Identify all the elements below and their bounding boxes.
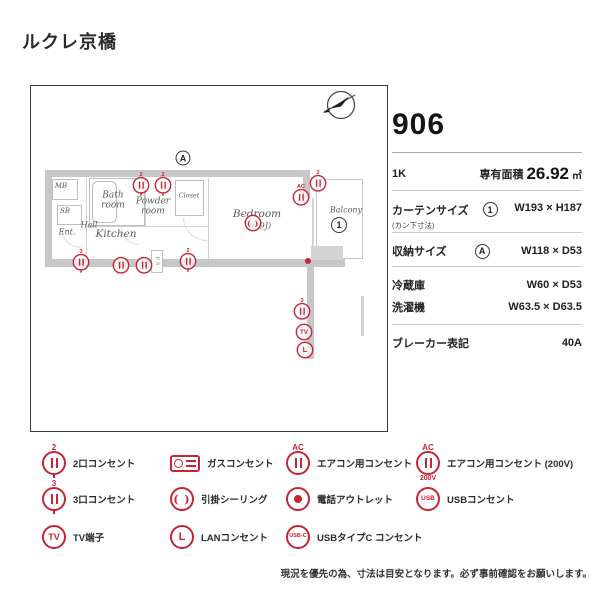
room-label-balcony: Balcony [330,205,362,214]
plan-outlet3-icon: 3 [294,303,311,323]
plan-ac-outlet-icon: AC [293,189,310,209]
breaker-label: ブレーカー表記 [392,335,469,351]
rail-stub [361,296,364,336]
usbc-outlet-icon: USB-C [286,525,310,549]
storage-label: 収納サイズ [392,243,447,259]
legend-item-outlet3: 3 3口コンセント [42,486,135,512]
storage-marker-ref: A [475,244,490,259]
plan-lan-icon: L [297,342,314,359]
room-label-kitchen: Kitchen [95,228,136,240]
fridge-row: 冷蔵庫 W60 × D53 [392,274,582,296]
plan-gas-outlet-icon [136,257,153,277]
divider [392,232,582,233]
gas-outlet-icon [170,455,200,472]
divider [392,266,582,267]
washer-label: 洗濯機 [392,299,425,315]
fridge-value: W60 × D53 [527,279,582,291]
curtain-label: カーテンサイズ [392,202,469,218]
plan-outlet2-icon: 2 [155,177,172,197]
info-panel: 906 1K 専有面積 26.92 ㎡ カーテンサイズ (カン下寸法) 1 W1… [392,108,582,368]
area-unit: ㎡ [572,167,582,182]
partition-line [208,178,209,259]
plan-outlet2-icon [113,257,130,277]
curtain-sublabel: (カン下寸法) [392,220,469,231]
partition-line [86,178,87,259]
room-label-mb: MB [55,182,67,190]
page: ルクレ京橋 [0,0,600,600]
breaker-value: 40A [562,337,582,349]
plan-tv-icon: TV [296,324,313,341]
divider [392,324,582,325]
compass-icon [321,86,359,124]
wall [45,170,52,267]
plan-outlet2-icon: 2 [133,177,150,197]
washer-value: W63.5 × D63.5 [508,301,582,313]
curtain-marker-ref: 1 [483,202,498,217]
legend-item-ac200: AC200V エアコン用コンセント (200V) [416,450,573,476]
room-label-ps: PS [154,257,160,268]
washer-row: 洗濯機 W63.5 × D63.5 [392,296,582,318]
building-title: ルクレ京橋 [22,28,117,54]
disclaimer: 現況を優先の為、寸法は目安となります。必ず事前確認をお願いします。 [281,566,592,580]
layout-type: 1K [392,168,406,180]
area-label: 専有面積 [479,166,523,182]
room-label-closet: Closet [179,192,200,199]
wall [45,170,307,177]
ceiling-light-icon: ( ) [170,487,194,511]
door-arc [183,217,207,241]
plan-outlet3-icon: 3 [73,254,90,274]
legend-item-ceiling: ( ) 引掛シーリング [170,486,268,512]
legend-item-outlet2: 2 2口コンセント [42,450,135,476]
layout-area-row: 1K 専有面積 26.92 ㎡ [392,160,582,188]
curtain-marker: 1 [331,217,347,233]
legend-item-ac: AC エアコン用コンセント [286,450,412,476]
storage-value: W118 × D53 [521,245,582,257]
curtain-value: W193 × H187 [514,202,582,214]
room-label-powder: Powder room [131,197,175,218]
lan-icon: L [170,525,194,549]
legend-item-gas: ガスコンセント [170,450,274,476]
area-value: 26.92 [526,164,569,184]
divider [392,152,582,153]
phone-outlet-icon [286,487,310,511]
plan-outlet2-icon: 2 [180,253,197,273]
unit-number: 906 [392,108,445,142]
divider [392,190,582,191]
usb-outlet-icon: USB [416,487,440,511]
outlet2-icon: 2 [42,451,66,475]
room-label-bath: Bath room [91,191,135,212]
legend-item-lan: L LANコンセント [170,524,268,550]
breaker-row: ブレーカー表記 40A [392,332,582,354]
legend-item-usb: USB USBコンセント [416,486,515,512]
storage-row: 収納サイズ A W118 × D53 [392,238,582,264]
legend-item-usbc: USB-C USBタイプC コンセント [286,524,423,550]
plan-phone-outlet-icon [305,258,311,264]
plan-outlet2-icon: 2 [310,175,327,195]
room-label-ent: Ent. [59,227,76,236]
plan-ceiling-light-icon: ( ) [245,215,262,232]
ac-outlet-icon: AC [286,451,310,475]
room-label-sb: SB [60,207,70,215]
fridge-label: 冷蔵庫 [392,277,425,293]
legend-item-tv: TV TV端子 [42,524,104,550]
legend-item-phone: 電話アウトレット [286,486,393,512]
ac200-outlet-icon: AC200V [416,451,440,475]
outlet3-icon: 3 [42,487,66,511]
storage-marker: A [176,151,191,166]
tv-icon: TV [42,525,66,549]
floorplan: MB SB Ent. Hall Bath room Powder room Cl… [30,85,388,432]
balcony-equipment [311,246,343,260]
